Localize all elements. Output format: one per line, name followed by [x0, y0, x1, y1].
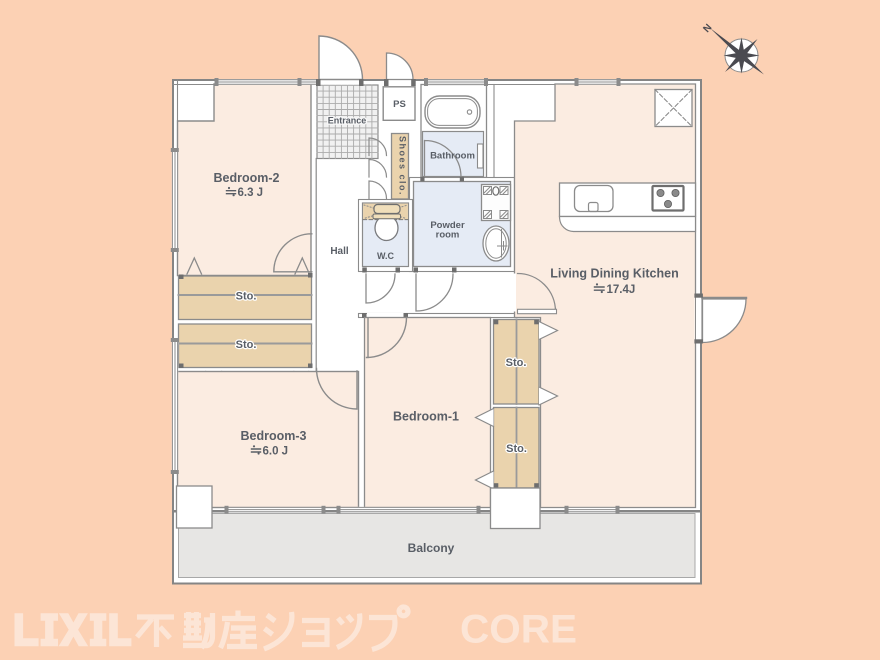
svg-text:Living Dining Kitchen: Living Dining Kitchen	[550, 267, 678, 281]
svg-text:Sto.: Sto.	[506, 357, 527, 369]
svg-text:Bedroom-3: Bedroom-3	[241, 429, 307, 443]
svg-text:Hall: Hall	[330, 246, 349, 257]
svg-text:Sto.: Sto.	[506, 443, 527, 455]
svg-text:room: room	[436, 230, 460, 241]
svg-text:Bedroom-1: Bedroom-1	[393, 410, 459, 424]
svg-text:Sto.: Sto.	[236, 339, 257, 351]
svg-text:PS: PS	[393, 99, 406, 110]
svg-text:Shoes clo.: Shoes clo.	[398, 136, 408, 196]
svg-text:6.3 J: 6.3 J	[238, 187, 264, 199]
svg-text:6.0 J: 6.0 J	[263, 446, 289, 458]
svg-text:Bedroom-2: Bedroom-2	[214, 171, 280, 185]
svg-text:Bathroom: Bathroom	[430, 151, 475, 162]
svg-text:Sto.: Sto.	[236, 291, 257, 303]
svg-text:CORE: CORE	[460, 608, 577, 652]
svg-text:Balcony: Balcony	[408, 541, 455, 555]
svg-text:Entrance: Entrance	[328, 116, 367, 126]
svg-text:17.4J: 17.4J	[607, 284, 636, 296]
svg-text:W.C: W.C	[377, 251, 394, 261]
